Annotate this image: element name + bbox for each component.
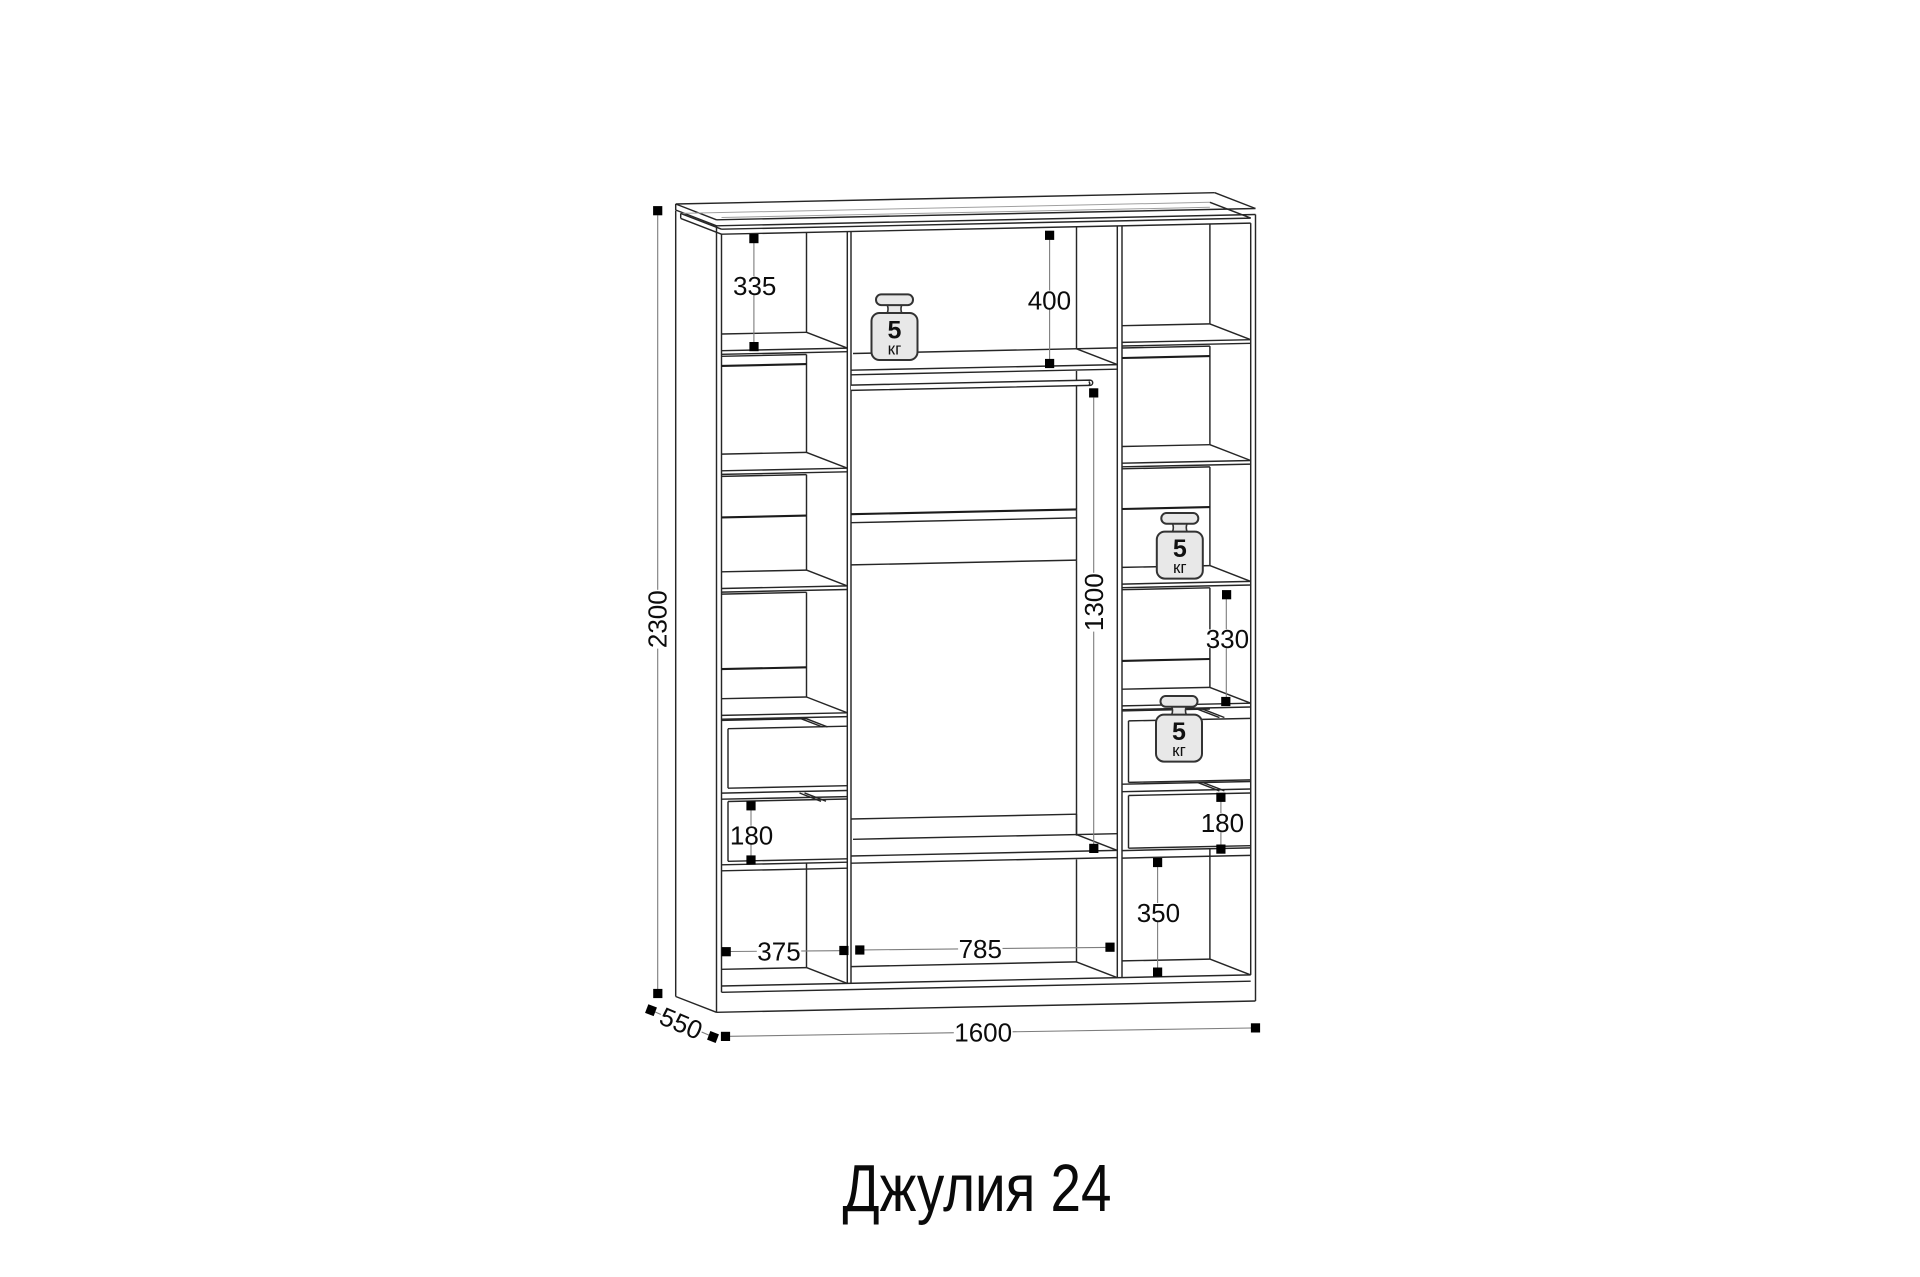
svg-text:180: 180: [730, 821, 773, 851]
svg-text:1600: 1600: [954, 1017, 1012, 1047]
svg-text:1300: 1300: [1079, 573, 1109, 631]
svg-text:375: 375: [757, 936, 800, 966]
svg-text:кг: кг: [1173, 558, 1187, 577]
svg-text:785: 785: [959, 934, 1002, 964]
svg-text:кг: кг: [888, 339, 902, 358]
svg-text:400: 400: [1028, 285, 1071, 315]
svg-text:330: 330: [1206, 624, 1249, 654]
svg-text:2300: 2300: [643, 590, 673, 648]
svg-text:180: 180: [1201, 808, 1244, 838]
svg-text:335: 335: [733, 271, 776, 301]
svg-text:кг: кг: [1172, 741, 1186, 760]
svg-text:Джулия 24: Джулия 24: [843, 1151, 1112, 1226]
svg-text:350: 350: [1137, 898, 1180, 928]
